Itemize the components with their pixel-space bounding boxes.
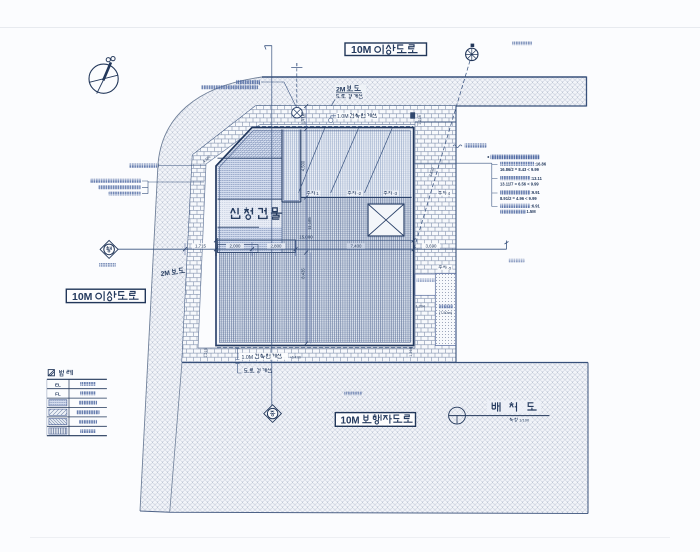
svg-text:4,500: 4,500	[301, 160, 306, 171]
svg-text:1,204: 1,204	[416, 305, 426, 309]
svg-text:16.86/2 = 8.43 < 9.99: 16.86/2 = 8.43 < 9.99	[500, 167, 540, 172]
svg-text:10M: 10M	[341, 415, 360, 426]
svg-text:1/100: 1/100	[519, 417, 530, 422]
svg-text:11,185: 11,185	[307, 217, 312, 230]
svg-text:13.11/7 = 6.56 < 9.99: 13.11/7 = 6.56 < 9.99	[500, 181, 539, 186]
svg-text:EL: EL	[55, 382, 61, 387]
svg-text:(7.50m): (7.50m)	[439, 311, 453, 315]
svg-text::16.86: :16.86	[535, 162, 547, 167]
svg-text:3,690: 3,690	[426, 244, 438, 249]
svg-text:1.5M: 1.5M	[527, 209, 537, 214]
svg-text:1,215: 1,215	[204, 348, 208, 358]
svg-text:1,715: 1,715	[195, 244, 207, 249]
svg-text::9.91: :9.91	[531, 190, 541, 195]
svg-text:2M: 2M	[160, 270, 170, 278]
svg-text:8.91/2 = 4.96 < 9.99: 8.91/2 = 4.96 < 9.99	[500, 196, 537, 201]
svg-text:1,218: 1,218	[418, 115, 422, 125]
svg-text:8,435: 8,435	[301, 268, 306, 279]
svg-text:-3: -3	[393, 191, 397, 196]
svg-text:10M: 10M	[72, 291, 93, 303]
svg-text:1.0M: 1.0M	[242, 355, 254, 361]
svg-text:1.0M: 1.0M	[337, 114, 349, 120]
svg-text:2M: 2M	[336, 87, 346, 94]
svg-text:7,400: 7,400	[351, 244, 363, 249]
svg-text:2,000: 2,000	[230, 244, 242, 249]
svg-text:10M: 10M	[351, 44, 372, 56]
svg-text:+6.4:00: +6.4:00	[290, 356, 301, 360]
svg-text::6.91: :6.91	[531, 204, 541, 209]
svg-text:2,800: 2,800	[271, 244, 283, 249]
svg-text::13.11: :13.11	[531, 176, 543, 181]
svg-text:1,218: 1,218	[409, 347, 413, 357]
svg-text:-2: -2	[357, 191, 361, 196]
svg-text:1,718: 1,718	[301, 112, 305, 122]
